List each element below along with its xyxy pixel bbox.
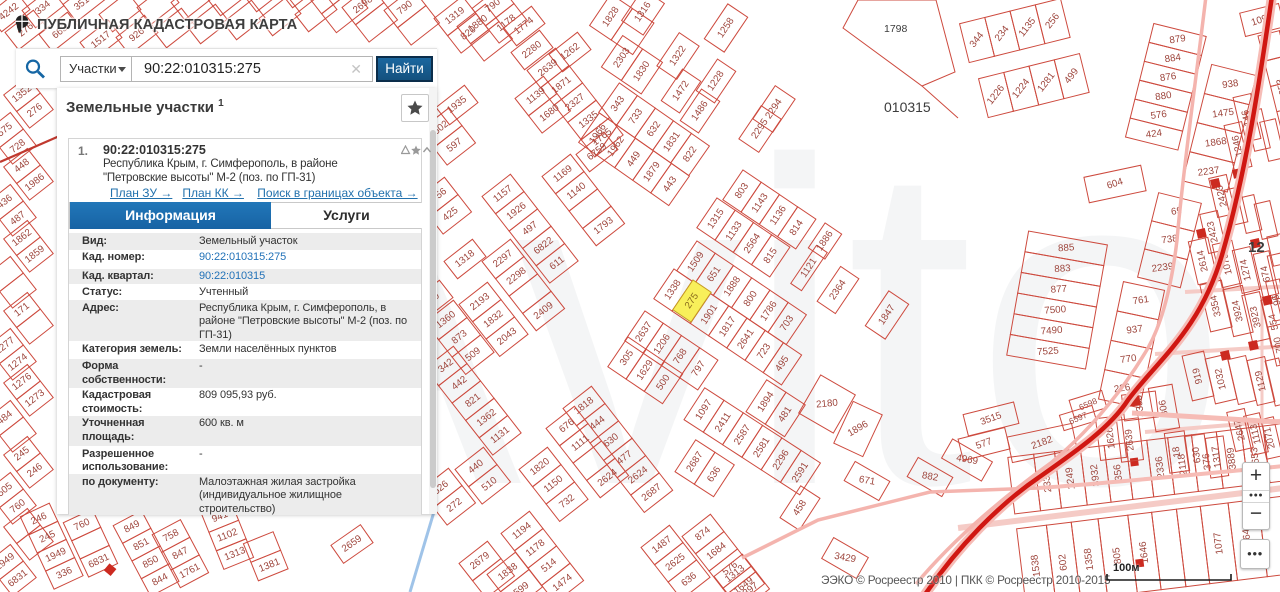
- svg-text:2180: 2180: [816, 398, 839, 411]
- svg-text:18: 18: [1171, 445, 1183, 458]
- svg-text:884: 884: [1164, 52, 1182, 65]
- svg-text:010315: 010315: [884, 99, 931, 115]
- svg-text:880: 880: [1155, 90, 1173, 103]
- svg-text:938: 938: [1222, 78, 1240, 91]
- svg-text:877: 877: [1050, 284, 1067, 296]
- svg-text:883: 883: [1054, 263, 1072, 275]
- svg-text:602: 602: [1057, 553, 1070, 571]
- svg-text:576: 576: [1150, 109, 1168, 122]
- svg-text:12: 12: [1248, 239, 1265, 256]
- svg-text:630: 630: [1190, 446, 1203, 464]
- svg-text:356: 356: [1112, 463, 1125, 481]
- svg-text:885: 885: [1058, 242, 1076, 254]
- svg-text:770: 770: [1120, 353, 1138, 366]
- svg-text:7500: 7500: [1044, 304, 1067, 317]
- svg-text:937: 937: [1126, 323, 1144, 336]
- svg-text:7525: 7525: [1037, 345, 1060, 358]
- svg-text:7490: 7490: [1040, 325, 1063, 338]
- svg-text:1798: 1798: [884, 23, 908, 35]
- svg-text:876: 876: [1159, 71, 1177, 84]
- svg-text:879: 879: [1169, 33, 1187, 46]
- svg-text:761: 761: [1132, 294, 1150, 307]
- svg-text:424: 424: [1145, 128, 1163, 141]
